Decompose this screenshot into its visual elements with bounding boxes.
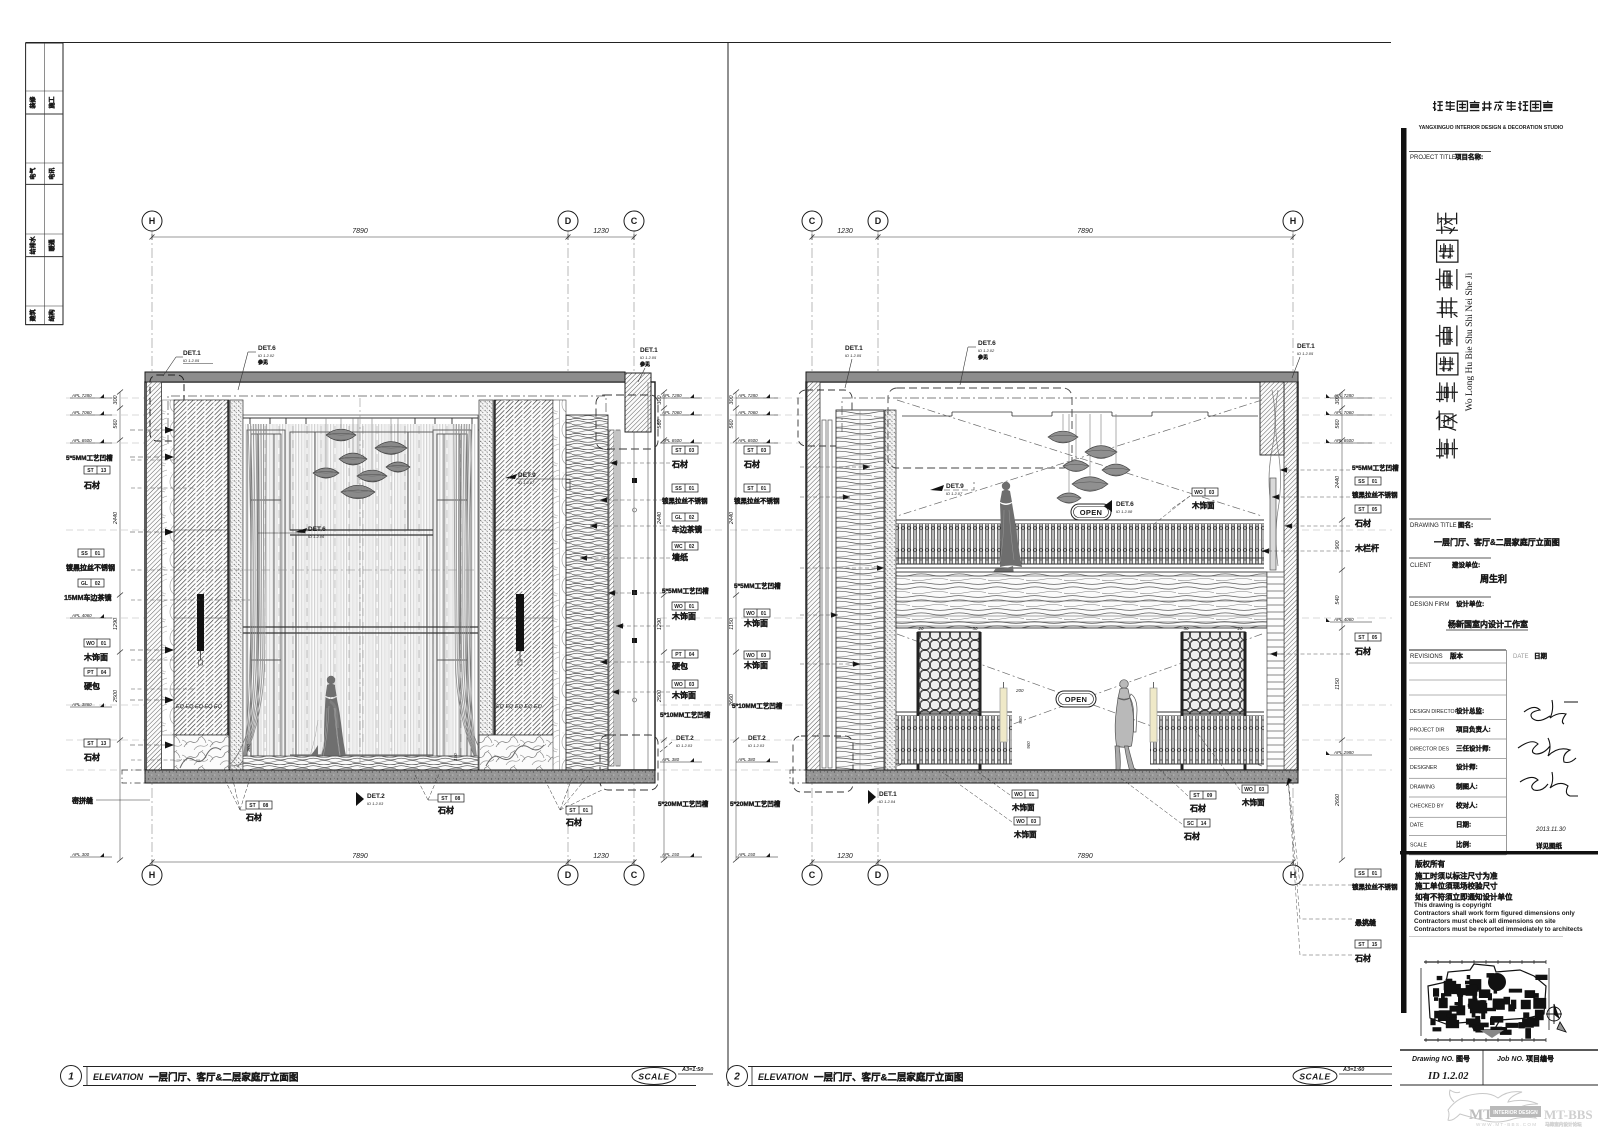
svg-text:APL 6500: APL 6500 [737,438,758,443]
svg-text:2440: 2440 [729,511,735,525]
svg-text:SS: SS [675,486,682,492]
svg-text:MT-BBS: MT-BBS [1544,1107,1593,1122]
svg-text:SCALE: SCALE [638,1072,669,1082]
svg-text:木饰面: 木饰面 [671,611,696,621]
svg-text:DET.1: DET.1 [845,345,863,352]
svg-text:结构: 结构 [48,309,56,321]
svg-text:50: 50 [1183,626,1189,631]
svg-text:01: 01 [583,808,589,814]
svg-text:ST: ST [675,448,681,454]
svg-text:施工: 施工 [48,96,56,108]
svg-text:GL: GL [675,515,682,521]
svg-text:悬挑缝: 悬挑缝 [1354,918,1376,927]
svg-text:C: C [631,870,638,880]
svg-text:ST: ST [747,486,753,492]
svg-text:1230: 1230 [837,228,853,235]
svg-text:SS: SS [1358,479,1365,485]
svg-text:给排水: 给排水 [29,235,37,254]
svg-text:1230: 1230 [593,228,609,235]
svg-text:参见: 参见 [258,359,268,366]
svg-text:5*10MM工艺凹槽: 5*10MM工艺凹槽 [732,701,783,710]
svg-text:WO: WO [746,611,755,617]
svg-text:02: 02 [689,515,695,521]
svg-text:A3=1:50: A3=1:50 [681,1067,703,1073]
svg-text:杨新国室内设计工作室: 杨新国室内设计工作室 [1448,619,1528,629]
svg-text:木饰面: 木饰面 [1013,829,1037,839]
svg-text:石材: 石材 [1189,803,1206,813]
svg-text:DET.1: DET.1 [640,347,658,354]
svg-text:A3=1:60: A3=1:60 [1342,1067,1364,1073]
svg-text:WO: WO [86,641,95,647]
svg-text:ST: ST [747,448,753,454]
svg-text:H: H [149,216,156,226]
svg-text:C: C [631,216,638,226]
svg-text:05: 05 [1372,635,1378,641]
svg-text:01: 01 [101,641,107,647]
svg-text:5*20MM工艺凹槽: 5*20MM工艺凹槽 [730,799,781,808]
svg-text:INTERIOR DESIGN: INTERIOR DESIGN [1493,1110,1538,1116]
svg-text:03: 03 [761,448,767,454]
svg-text:参见: 参见 [640,361,650,368]
svg-text:DATE: DATE [1410,822,1424,828]
svg-text:09: 09 [1207,793,1213,799]
svg-text:项目负责人:: 项目负责人: [1456,724,1491,733]
svg-text:APL 6500: APL 6500 [71,438,92,443]
svg-text:01: 01 [761,486,767,492]
svg-text:APL 150: APL 150 [737,852,756,857]
svg-text:560: 560 [729,418,735,428]
svg-text:DET.9: DET.9 [946,483,964,490]
svg-text:车边茶镜: 车边茶镜 [672,524,702,534]
svg-text:560: 560 [113,418,119,428]
svg-text:2013.11.30: 2013.11.30 [1535,827,1566,833]
svg-text:APL 4060: APL 4060 [1333,617,1354,622]
svg-text:电气: 电气 [29,168,37,180]
svg-text:540: 540 [1335,594,1341,604]
svg-text:2440: 2440 [657,511,663,525]
svg-text:DET.6: DET.6 [308,526,326,533]
svg-text:石材: 石材 [671,459,688,469]
svg-text:7890: 7890 [1077,853,1093,860]
svg-text:ID 1.2.05: ID 1.2.05 [1297,351,1314,356]
svg-text:DRAWING: DRAWING [1410,785,1435,791]
svg-text:ID 1.2.05: ID 1.2.05 [183,358,200,363]
svg-text:ID 1.2.03: ID 1.2.03 [748,743,765,748]
svg-text:一层门厅、客厅&二层家庭厅立面图: 一层门厅、客厅&二层家庭厅立面图 [1434,537,1560,547]
svg-text:木饰面: 木饰面 [671,690,696,700]
svg-text:ID 1.2.02: ID 1.2.02 [258,353,275,358]
svg-text:01: 01 [689,486,695,492]
svg-text:APL 7060: APL 7060 [1333,410,1354,415]
svg-text:01: 01 [1372,479,1378,485]
svg-text:H: H [1290,870,1297,880]
svg-text:01: 01 [95,551,101,557]
svg-text:ID 1.2.07: ID 1.2.07 [518,480,535,485]
svg-text:施工时须以标注尺寸为准: 施工时须以标注尺寸为准 [1415,871,1498,881]
svg-text:版本: 版本 [1449,651,1464,660]
svg-text:ST: ST [1358,942,1364,948]
svg-text:DESIGNER: DESIGNER [1410,765,1437,771]
svg-text:5*20MM工艺凹槽: 5*20MM工艺凹槽 [658,799,709,808]
svg-text:DRAWING TITLE: DRAWING TITLE [1410,523,1457,529]
svg-text:DESIGN DIRECTOR: DESIGN DIRECTOR [1410,709,1459,715]
svg-text:13: 13 [101,468,107,474]
svg-text:Job NO.: Job NO. [1497,1056,1524,1063]
svg-text:比例:: 比例: [1456,840,1471,849]
svg-text:ID 1.2.06: ID 1.2.06 [308,534,325,539]
svg-text:550: 550 [1018,716,1023,724]
svg-text:01: 01 [1029,792,1035,798]
svg-text:PROJECT TITLE: PROJECT TITLE [1410,155,1456,161]
svg-text:石材: 石材 [1183,831,1200,841]
svg-text:300: 300 [113,394,119,404]
svg-text:电讯: 电讯 [48,168,56,180]
svg-text:H: H [149,870,156,880]
svg-text:石材: 石材 [1354,518,1371,528]
svg-text:石材: 石材 [437,805,454,815]
svg-text:CLIENT: CLIENT [1410,563,1432,569]
svg-text:APL 380: APL 380 [737,757,756,762]
svg-text:木饰面: 木饰面 [743,660,768,670]
svg-text:2500: 2500 [113,689,119,703]
svg-text:01: 01 [761,611,767,617]
svg-text:03: 03 [1209,490,1215,496]
svg-text:7890: 7890 [352,853,368,860]
svg-text:This drawing is copyright: This drawing is copyright [1414,902,1492,909]
svg-text:Contractors shall work form fi: Contractors shall work form figured dime… [1414,910,1575,917]
svg-text:200: 200 [1015,688,1024,693]
svg-text:300: 300 [729,394,735,404]
svg-text:DET.6: DET.6 [258,345,276,352]
svg-text:EQ EQ EQ EQ EQ: EQ EQ EQ EQ EQ [496,704,543,710]
svg-text:APL 7280: APL 7280 [737,393,758,398]
svg-text:校对人:: 校对人: [1456,800,1478,809]
svg-text:02: 02 [95,581,101,587]
svg-text:D: D [565,216,572,226]
svg-text:镀黑拉丝不锈钢: 镀黑拉丝不锈钢 [734,496,780,505]
svg-text:08: 08 [263,803,269,809]
svg-text:ELEVATION: ELEVATION [758,1072,809,1082]
svg-text:参见: 参见 [978,354,988,361]
svg-text:木栏杆: 木栏杆 [1354,543,1379,553]
svg-text:05: 05 [1372,507,1378,513]
svg-text:5*5MM工艺凹槽: 5*5MM工艺凹槽 [734,581,781,590]
svg-text:300: 300 [1335,394,1341,404]
svg-text:WO: WO [674,682,683,688]
svg-text:C: C [809,870,816,880]
svg-text:PT: PT [87,670,93,676]
svg-text:ST: ST [1358,507,1364,513]
svg-text:设计总监:: 设计总监: [1456,706,1484,715]
svg-text:GL: GL [81,581,88,587]
svg-text:APL 2980: APL 2980 [1333,750,1354,755]
svg-text:镀黑拉丝不锈钢: 镀黑拉丝不锈钢 [662,496,708,505]
svg-text:Contractors must check all dim: Contractors must check all dimensions on… [1414,918,1556,925]
svg-text:周生利: 周生利 [1480,573,1507,584]
svg-text:01: 01 [689,604,695,610]
svg-text:ID 1.2.08: ID 1.2.08 [1116,509,1133,514]
svg-text:560: 560 [1335,418,1341,428]
svg-text:DET.6: DET.6 [1116,501,1134,508]
svg-text:13: 13 [101,741,107,747]
svg-text:日期:: 日期: [1456,819,1471,828]
svg-text:2: 2 [733,1072,740,1083]
svg-text:1230: 1230 [837,853,853,860]
svg-text:硬包: 硬包 [84,681,100,691]
svg-text:APL 7060: APL 7060 [737,410,758,415]
svg-text:三任设计师:: 三任设计师: [1456,743,1491,752]
svg-text:7890: 7890 [352,228,368,235]
svg-text:20: 20 [1236,626,1243,631]
svg-text:镀黑拉丝不锈钢: 镀黑拉丝不锈钢 [66,563,115,572]
svg-text:DET.2: DET.2 [676,735,694,742]
svg-text:300: 300 [246,744,251,752]
svg-text:WO: WO [1014,792,1023,798]
svg-text:08: 08 [455,796,461,802]
svg-text:14: 14 [1201,821,1207,827]
svg-text:图名:: 图名: [1458,520,1473,529]
svg-text:石材: 石材 [1354,646,1371,656]
svg-text:WO: WO [1244,787,1253,793]
svg-text:石材: 石材 [1354,953,1371,963]
svg-text:SC: SC [1187,821,1194,827]
svg-text:CHECKED BY: CHECKED BY [1410,803,1444,809]
svg-text:D: D [565,870,572,880]
svg-text:硬包: 硬包 [672,661,688,671]
svg-text:900: 900 [1335,539,1341,549]
svg-text:马蹄室内设计论坛: 马蹄室内设计论坛 [1545,1121,1582,1128]
svg-text:02: 02 [689,544,695,550]
svg-text:DATE: DATE [1513,654,1529,660]
svg-text:7890: 7890 [1077,228,1093,235]
svg-text:APL 7280: APL 7280 [71,393,92,398]
svg-text:20: 20 [917,626,924,631]
svg-text:石材: 石材 [565,817,582,827]
svg-text:1150: 1150 [729,617,735,630]
svg-text:300: 300 [657,394,663,404]
svg-text:D: D [875,870,882,880]
svg-text:木饰面: 木饰面 [1191,500,1215,510]
svg-text:WO: WO [1194,490,1203,496]
svg-text:制图人:: 制图人: [1456,782,1478,791]
svg-text:木饰面: 木饰面 [1241,797,1265,807]
svg-text:WO: WO [746,653,755,659]
svg-text:版权所有: 版权所有 [1414,859,1445,869]
svg-text:1150: 1150 [1335,677,1341,690]
svg-text:一层门厅、客厅&二层家庭厅立面图: 一层门厅、客厅&二层家庭厅立面图 [149,1072,298,1084]
svg-text:DET.6: DET.6 [978,340,996,347]
svg-text:MT: MT [1469,1107,1493,1123]
svg-text:900: 900 [1026,741,1031,749]
svg-text:石材: 石材 [245,812,262,822]
svg-text:Wo Long Hu Bie Shu Shi Nei She: Wo Long Hu Bie Shu Shi Nei She Ji [1465,272,1475,411]
svg-text:SS: SS [1358,871,1365,877]
svg-text:03: 03 [761,653,767,659]
svg-text:APL 7060: APL 7060 [71,410,92,415]
svg-text:石材: 石材 [83,752,100,762]
svg-text:PROJECT DIR: PROJECT DIR [1410,727,1445,733]
svg-text:OPEN: OPEN [1065,695,1087,704]
svg-text:施工单位须现场校验尺寸: 施工单位须现场校验尺寸 [1415,881,1498,891]
svg-text:2440: 2440 [113,511,119,525]
svg-text:1: 1 [68,1072,74,1083]
svg-text:SS: SS [81,551,88,557]
svg-text:图号: 图号 [1456,1054,1470,1063]
svg-text:一层门厅、客厅&二层家庭厅立面图: 一层门厅、客厅&二层家庭厅立面图 [814,1072,963,1084]
svg-text:Contractors must be reported i: Contractors must be reported immediately… [1414,926,1583,933]
svg-text:WO: WO [1016,819,1025,825]
svg-text:1230: 1230 [593,853,609,860]
svg-text:5*5MM工艺凹槽: 5*5MM工艺凹槽 [66,453,113,462]
svg-text:ST: ST [87,741,93,747]
svg-text:03: 03 [689,682,695,688]
svg-text:ST: ST [1358,635,1364,641]
svg-text:15: 15 [1372,942,1378,948]
svg-text:D: D [875,216,882,226]
svg-text:ST: ST [569,808,575,814]
svg-text:镀黑拉丝不锈钢: 镀黑拉丝不锈钢 [1352,882,1398,891]
svg-text:2500: 2500 [657,689,663,703]
svg-text:EQ EQ EQ EQ EQ: EQ EQ EQ EQ EQ [176,704,223,710]
svg-text:ID 1.2.04: ID 1.2.04 [879,799,896,804]
svg-text:DET.1: DET.1 [1297,343,1315,350]
svg-text:DET.2: DET.2 [367,793,385,800]
svg-text:01: 01 [1372,871,1378,877]
svg-text:APL 3860: APL 3860 [71,702,92,707]
svg-text:03: 03 [689,448,695,454]
svg-text:装修: 装修 [29,96,37,110]
svg-text:ID 1.2.05: ID 1.2.05 [640,355,657,360]
svg-text:APL 4060: APL 4060 [71,613,92,618]
svg-text:ID 1.2.03: ID 1.2.03 [367,801,384,806]
svg-text:2660: 2660 [729,693,735,707]
svg-text:建设单位:: 建设单位: [1451,560,1480,569]
svg-text:建筑: 建筑 [29,309,37,321]
svg-text:APL 300: APL 300 [71,852,90,857]
svg-text:日期: 日期 [1534,651,1548,660]
svg-text:03: 03 [1031,819,1037,825]
svg-text:04: 04 [689,652,695,658]
svg-text:DET.2: DET.2 [748,735,766,742]
svg-text:SCALE: SCALE [1299,1072,1330,1082]
svg-text:DESIGN FIRM: DESIGN FIRM [1410,602,1449,608]
svg-text:5*5MM工艺凹槽: 5*5MM工艺凹槽 [1352,463,1399,472]
svg-text:Drawing NO.: Drawing NO. [1412,1056,1454,1063]
svg-text:H: H [1290,216,1297,226]
svg-text:DET.1: DET.1 [183,350,201,357]
svg-text:1290: 1290 [113,617,119,630]
svg-text:石材: 石材 [743,459,760,469]
svg-text:WO: WO [674,604,683,610]
svg-text:设计单位:: 设计单位: [1456,599,1484,608]
svg-text:PT: PT [675,652,681,658]
svg-text:项目名称:: 项目名称: [1455,152,1483,161]
svg-text:ID 1.2.02: ID 1.2.02 [1427,1071,1469,1082]
svg-text:ST: ST [249,803,255,809]
svg-text:YANGXINGUO INTERIOR DESIGN & D: YANGXINGUO INTERIOR DESIGN & DECORATION … [1419,125,1564,131]
svg-text:木饰面: 木饰面 [743,618,768,628]
svg-text:DET.1: DET.1 [879,791,897,798]
svg-text:15MM车边茶镜: 15MM车边茶镜 [64,593,111,602]
svg-text:设计师:: 设计师: [1456,762,1478,771]
svg-text:ID 1.2.03: ID 1.2.03 [676,743,693,748]
svg-text:5*5MM工艺凹槽: 5*5MM工艺凹槽 [662,586,709,595]
svg-text:5*10MM工艺凹槽: 5*10MM工艺凹槽 [660,710,711,719]
svg-text:暖通: 暖通 [48,239,56,251]
svg-text:REVISIONS: REVISIONS [1410,654,1443,660]
svg-text:木饰面: 木饰面 [1011,802,1035,812]
svg-text:ID 1.2.07: ID 1.2.07 [946,491,963,496]
svg-text:石材: 石材 [83,480,100,490]
svg-text:03: 03 [1259,787,1265,793]
svg-text:墙纸: 墙纸 [672,552,688,562]
svg-text:密拼缝: 密拼缝 [72,796,93,805]
svg-text:50: 50 [972,626,978,631]
svg-text:项目编号: 项目编号 [1526,1054,1554,1063]
svg-text:ELEVATION: ELEVATION [93,1072,144,1082]
svg-text:DIRECTOR DES: DIRECTOR DES [1410,746,1450,752]
svg-text:SCALE: SCALE [1410,843,1428,849]
svg-text:560: 560 [657,418,663,428]
svg-text:WC: WC [674,544,683,550]
svg-text:ID 1.2.02: ID 1.2.02 [978,348,995,353]
svg-text:DET.9: DET.9 [518,472,536,479]
svg-text:150: 150 [453,753,458,761]
svg-text:ST: ST [87,468,93,474]
svg-text:2440: 2440 [1335,475,1341,489]
svg-text:详见图纸: 详见图纸 [1536,841,1563,850]
svg-text:ID 1.2.05: ID 1.2.05 [845,353,862,358]
svg-text:如有不符须立即通知设计单位: 如有不符须立即通知设计单位 [1415,892,1513,902]
svg-text:1290: 1290 [657,617,663,630]
svg-text:ST: ST [1193,793,1199,799]
svg-text:C: C [809,216,816,226]
svg-text:镀黑拉丝不锈钢: 镀黑拉丝不锈钢 [1352,490,1398,499]
svg-text:04: 04 [101,670,107,676]
svg-text:ST: ST [441,796,447,802]
svg-text:木饰面: 木饰面 [83,652,108,662]
svg-text:2660: 2660 [1335,793,1341,807]
svg-text:W W W . M T - B B S . C O M: W W W . M T - B B S . C O M [1476,1122,1536,1127]
svg-text:OPEN: OPEN [1080,508,1102,517]
